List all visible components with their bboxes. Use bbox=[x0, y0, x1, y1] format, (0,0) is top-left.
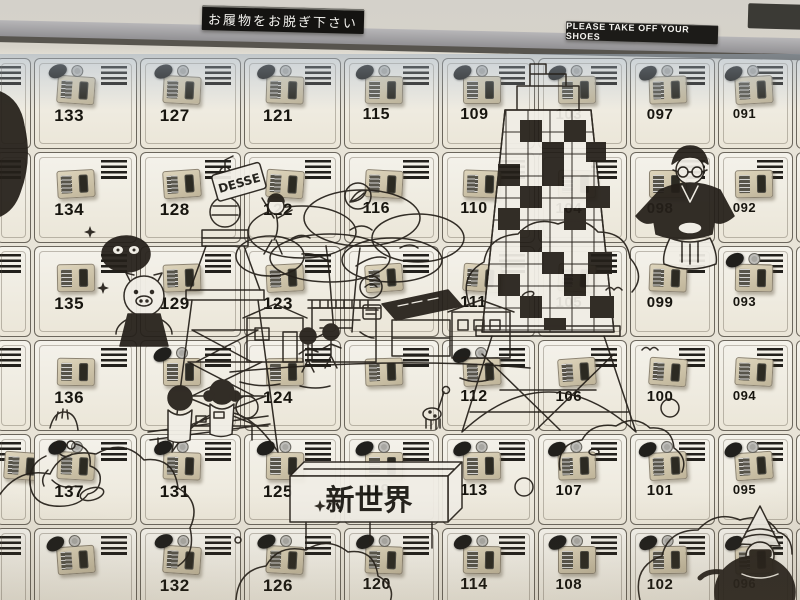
locker-door[interactable]: 136 bbox=[34, 340, 137, 431]
locker-door[interactable]: 103 bbox=[538, 58, 627, 149]
key-lock[interactable] bbox=[57, 169, 96, 199]
locker-number: 104 bbox=[556, 200, 583, 217]
key-fob-icon[interactable] bbox=[47, 61, 70, 81]
locker-door[interactable]: 109 bbox=[442, 58, 535, 149]
key-slot[interactable] bbox=[757, 269, 766, 287]
key-fob-icon[interactable] bbox=[546, 439, 569, 460]
key-lock[interactable] bbox=[649, 170, 687, 198]
locker-door[interactable]: 101 bbox=[630, 434, 715, 525]
key-slot[interactable] bbox=[287, 551, 297, 569]
key-lock[interactable] bbox=[649, 451, 688, 481]
key-slot[interactable] bbox=[580, 81, 589, 99]
key-lock[interactable] bbox=[558, 76, 596, 105]
locker-number: 094 bbox=[733, 388, 756, 403]
lock-label-chip bbox=[369, 174, 381, 193]
locker-door[interactable] bbox=[796, 152, 800, 243]
key-fob-icon[interactable] bbox=[451, 62, 474, 82]
key-lock[interactable] bbox=[557, 263, 596, 293]
locker-door[interactable]: 120 bbox=[344, 528, 439, 600]
key-lock[interactable] bbox=[365, 452, 403, 480]
lock-label-chip bbox=[61, 269, 72, 287]
key-slot[interactable] bbox=[288, 81, 298, 99]
locker-door[interactable]: 131 bbox=[140, 434, 241, 525]
locker-number: 111 bbox=[460, 294, 486, 312]
lock-label-chip bbox=[562, 268, 574, 287]
lock-label-chip bbox=[739, 362, 751, 381]
key-icon[interactable] bbox=[661, 65, 673, 77]
locker-door[interactable] bbox=[796, 340, 800, 431]
locker-door[interactable]: 113 bbox=[442, 434, 535, 525]
key-slot[interactable] bbox=[484, 269, 494, 288]
vent-grille-icon bbox=[499, 536, 525, 557]
locker-door[interactable]: 129 bbox=[140, 246, 241, 337]
key-slot[interactable] bbox=[580, 175, 589, 193]
key-lock[interactable] bbox=[162, 75, 201, 105]
key-icon[interactable] bbox=[746, 441, 759, 454]
key-slot[interactable] bbox=[671, 80, 681, 98]
key-lock[interactable] bbox=[463, 452, 501, 481]
locker-number: 091 bbox=[733, 106, 756, 121]
japanese-shoes-sign: お履物をお脱ぎ下さい bbox=[202, 5, 365, 34]
key-fob-icon[interactable] bbox=[46, 438, 69, 458]
key-slot[interactable] bbox=[671, 363, 681, 382]
key-slot[interactable] bbox=[580, 269, 590, 287]
lock-label-chip bbox=[166, 80, 178, 99]
key-slot[interactable] bbox=[580, 456, 590, 474]
locker-door[interactable] bbox=[140, 340, 241, 431]
key-slot[interactable] bbox=[288, 363, 297, 381]
lock-label-chip bbox=[738, 457, 750, 476]
key-lock[interactable] bbox=[56, 545, 96, 576]
lock-label-chip bbox=[269, 550, 281, 569]
locker-door[interactable]: 098 bbox=[630, 152, 715, 243]
key-icon[interactable] bbox=[71, 441, 84, 454]
key-fob-icon[interactable] bbox=[255, 532, 278, 552]
key-lock[interactable] bbox=[365, 545, 404, 574]
key-fob-icon[interactable] bbox=[151, 344, 174, 364]
key-fob-icon[interactable] bbox=[451, 438, 474, 459]
lock-label-chip bbox=[653, 362, 665, 381]
locker-number: 102 bbox=[647, 576, 674, 593]
key-icon[interactable] bbox=[280, 535, 293, 548]
key-lock[interactable] bbox=[735, 264, 773, 293]
key-lock[interactable] bbox=[265, 545, 304, 575]
lock-label-chip bbox=[466, 268, 478, 287]
key-slot[interactable] bbox=[485, 457, 494, 475]
locker-door[interactable]: 111 bbox=[442, 246, 535, 337]
key-slot[interactable] bbox=[757, 363, 767, 381]
locker-door[interactable]: 125 bbox=[244, 434, 341, 525]
vent-grille-icon bbox=[403, 66, 429, 87]
vent-grille-icon bbox=[101, 442, 127, 463]
key-slot[interactable] bbox=[757, 550, 767, 568]
lock-label-chip bbox=[739, 551, 751, 569]
key-lock[interactable] bbox=[735, 170, 773, 199]
locker-door[interactable]: 099 bbox=[630, 246, 715, 337]
key-lock[interactable] bbox=[649, 75, 688, 104]
lock-label-chip bbox=[369, 269, 381, 288]
locker-door[interactable]: 119 bbox=[344, 434, 439, 525]
key-slot[interactable] bbox=[184, 551, 194, 570]
key-fob-icon[interactable] bbox=[152, 438, 175, 458]
vent-grille-icon bbox=[205, 66, 231, 87]
key-lock[interactable] bbox=[462, 357, 501, 387]
key-icon[interactable] bbox=[68, 535, 81, 548]
key-lock[interactable] bbox=[557, 357, 597, 388]
locker-number: 114 bbox=[460, 576, 487, 594]
key-slot[interactable] bbox=[184, 81, 194, 99]
key-lock[interactable] bbox=[365, 76, 403, 105]
locker-number: 120 bbox=[363, 576, 391, 594]
locker-door[interactable]: 100 bbox=[630, 340, 715, 431]
vent-grille-icon bbox=[0, 536, 21, 557]
lock-label-chip bbox=[739, 175, 750, 193]
key-lock[interactable] bbox=[734, 75, 773, 105]
locker-number: 131 bbox=[160, 482, 190, 502]
lock-label-chip bbox=[167, 363, 178, 381]
key-fob-icon[interactable] bbox=[546, 62, 569, 83]
locker-number: 122 bbox=[263, 200, 293, 220]
key-lock[interactable] bbox=[56, 75, 96, 106]
key-lock[interactable] bbox=[649, 546, 687, 575]
key-lock[interactable] bbox=[558, 170, 596, 199]
locker-door[interactable]: 097 bbox=[630, 58, 715, 149]
key-slot[interactable] bbox=[387, 362, 397, 380]
key-slot[interactable] bbox=[79, 457, 89, 475]
key-slot[interactable] bbox=[387, 268, 397, 287]
key-fob-icon[interactable] bbox=[152, 531, 175, 551]
key-lock[interactable] bbox=[163, 358, 201, 386]
locker-door[interactable]: 102 bbox=[630, 528, 715, 600]
vent-grille-icon bbox=[305, 442, 331, 463]
locker-number: 116 bbox=[363, 200, 390, 218]
locker-door[interactable] bbox=[0, 152, 31, 243]
lock-label-chip bbox=[653, 457, 665, 476]
key-slot[interactable] bbox=[184, 457, 194, 475]
key-lock[interactable] bbox=[57, 451, 96, 481]
key-lock[interactable] bbox=[162, 545, 202, 576]
locker-door[interactable]: 095 bbox=[718, 434, 793, 525]
key-icon[interactable] bbox=[748, 253, 760, 265]
lock-label-chip bbox=[270, 80, 282, 98]
key-fob-icon[interactable] bbox=[255, 62, 278, 82]
locker-door[interactable] bbox=[0, 528, 31, 600]
locker-number: 132 bbox=[160, 576, 190, 596]
locker-door[interactable]: 116 bbox=[344, 152, 439, 243]
locker-number: 110 bbox=[460, 200, 487, 218]
key-icon[interactable] bbox=[662, 535, 674, 547]
key-fob-icon[interactable] bbox=[723, 250, 746, 270]
key-slot[interactable] bbox=[79, 363, 88, 381]
key-lock[interactable] bbox=[57, 264, 95, 293]
key-slot[interactable] bbox=[79, 81, 89, 100]
key-slot[interactable] bbox=[387, 551, 397, 569]
locker-door[interactable]: 134 bbox=[34, 152, 137, 243]
key-slot[interactable] bbox=[387, 175, 397, 193]
key-fob-icon[interactable] bbox=[354, 532, 377, 552]
key-slot[interactable] bbox=[184, 268, 194, 286]
key-icon[interactable] bbox=[571, 535, 583, 547]
vent-grille-icon bbox=[499, 66, 525, 87]
locker-number: 101 bbox=[647, 482, 674, 499]
key-slot[interactable] bbox=[485, 362, 495, 380]
lock-label-chip bbox=[653, 175, 664, 193]
locker-number: 126 bbox=[263, 576, 293, 596]
lock-label-chip bbox=[61, 456, 73, 475]
key-slot[interactable] bbox=[579, 362, 589, 381]
key-icon[interactable] bbox=[476, 535, 488, 547]
vent-grille-icon bbox=[205, 254, 231, 275]
lock-label-chip bbox=[653, 81, 665, 99]
locker-door[interactable] bbox=[0, 340, 31, 431]
locker-door[interactable]: 132 bbox=[140, 528, 241, 600]
locker-door[interactable] bbox=[796, 246, 800, 337]
key-slot[interactable] bbox=[387, 81, 396, 99]
key-lock[interactable] bbox=[463, 76, 501, 104]
key-slot[interactable] bbox=[671, 175, 680, 193]
key-slot[interactable] bbox=[671, 551, 680, 569]
key-fob-icon[interactable] bbox=[152, 62, 175, 82]
locker-door[interactable]: 104 bbox=[538, 152, 627, 243]
locker-door[interactable]: 124 bbox=[244, 340, 341, 431]
vent-grille-icon bbox=[305, 536, 331, 557]
vent-grille-icon bbox=[403, 348, 429, 369]
key-lock[interactable] bbox=[57, 358, 95, 387]
locker-door[interactable]: 123 bbox=[244, 246, 341, 337]
locker-number: 135 bbox=[54, 294, 84, 314]
locker-number: 092 bbox=[733, 200, 756, 215]
vent-grille-icon bbox=[403, 254, 429, 275]
key-icon[interactable] bbox=[279, 65, 291, 77]
key-icon[interactable] bbox=[476, 441, 488, 453]
key-slot[interactable] bbox=[580, 551, 589, 569]
locker-door[interactable]: 121 bbox=[244, 58, 341, 149]
key-lock[interactable] bbox=[266, 358, 304, 387]
key-lock[interactable] bbox=[463, 169, 502, 198]
locker-door[interactable] bbox=[344, 246, 439, 337]
locker-door[interactable]: 112 bbox=[442, 340, 535, 431]
key-fob-icon[interactable] bbox=[546, 532, 569, 552]
locker-door[interactable]: 105 bbox=[538, 246, 627, 337]
locker-door[interactable] bbox=[796, 434, 800, 525]
key-lock[interactable] bbox=[365, 263, 405, 294]
lock-label-chip bbox=[739, 81, 751, 100]
key-slot[interactable] bbox=[288, 457, 297, 475]
lock-label-chip bbox=[562, 363, 574, 382]
key-slot[interactable] bbox=[757, 80, 767, 98]
key-icon[interactable] bbox=[176, 65, 189, 78]
locker-number: 109 bbox=[460, 106, 488, 124]
locker-door[interactable]: 093 bbox=[718, 246, 793, 337]
key-icon[interactable] bbox=[378, 441, 390, 453]
key-slot[interactable] bbox=[485, 175, 495, 193]
key-lock[interactable] bbox=[265, 169, 305, 200]
key-icon[interactable] bbox=[71, 65, 84, 78]
locker-number: 100 bbox=[647, 388, 674, 405]
lock-label-chip bbox=[166, 550, 178, 569]
vent-grille-icon bbox=[205, 536, 231, 557]
vent-grille-icon bbox=[403, 442, 429, 463]
locker-number: 097 bbox=[647, 106, 674, 123]
locker-number: 124 bbox=[263, 388, 293, 408]
key-icon[interactable] bbox=[476, 65, 488, 77]
key-icon[interactable] bbox=[661, 441, 674, 454]
locker-door[interactable]: 106 bbox=[538, 340, 627, 431]
locker-number: 115 bbox=[363, 106, 390, 124]
key-lock[interactable] bbox=[463, 546, 501, 575]
locker-number: 106 bbox=[556, 388, 583, 405]
key-icon[interactable] bbox=[177, 535, 190, 548]
key-icon[interactable] bbox=[176, 441, 188, 453]
lock-label-chip bbox=[467, 81, 478, 99]
key-fob-icon[interactable] bbox=[254, 438, 277, 458]
locker-door[interactable]: 137 bbox=[34, 434, 137, 525]
lock-label-chip bbox=[562, 551, 573, 569]
key-lock[interactable] bbox=[649, 263, 688, 292]
key-slot[interactable] bbox=[79, 269, 88, 287]
locker-door[interactable]: 090 bbox=[796, 528, 800, 600]
key-lock[interactable] bbox=[734, 357, 773, 387]
key-fob-icon[interactable] bbox=[354, 438, 377, 458]
key-slot[interactable] bbox=[485, 81, 494, 99]
lock-label-chip bbox=[562, 175, 573, 193]
locker-number: 119 bbox=[363, 482, 390, 500]
key-lock[interactable] bbox=[648, 357, 688, 388]
locker-door[interactable]: 115 bbox=[344, 58, 439, 149]
key-slot[interactable] bbox=[671, 269, 681, 287]
key-lock[interactable] bbox=[558, 546, 596, 574]
key-lock[interactable] bbox=[462, 263, 502, 294]
locker-door[interactable] bbox=[344, 340, 439, 431]
vent-grille-icon bbox=[403, 536, 429, 557]
key-lock[interactable] bbox=[365, 357, 404, 386]
locker-door[interactable]: 108 bbox=[538, 528, 627, 600]
dark-box bbox=[748, 3, 800, 30]
locker-door[interactable] bbox=[796, 58, 800, 149]
locker-door[interactable] bbox=[34, 528, 137, 600]
key-slot[interactable] bbox=[185, 363, 194, 381]
locker-door[interactable]: 114 bbox=[442, 528, 535, 600]
locker-number: 134 bbox=[54, 200, 84, 220]
key-lock[interactable] bbox=[162, 451, 201, 480]
key-icon[interactable] bbox=[475, 347, 488, 360]
key-slot[interactable] bbox=[287, 268, 297, 286]
locker-door[interactable]: 126 bbox=[244, 528, 341, 600]
key-lock[interactable] bbox=[365, 169, 404, 199]
locker-door[interactable]: 127 bbox=[140, 58, 241, 149]
vent-grille-icon bbox=[499, 160, 525, 181]
key-slot[interactable] bbox=[79, 174, 89, 192]
locker-number: 107 bbox=[556, 482, 583, 499]
key-icon[interactable] bbox=[747, 65, 760, 78]
locker-door[interactable]: 135 bbox=[34, 246, 137, 337]
key-lock[interactable] bbox=[558, 451, 597, 480]
key-icon[interactable] bbox=[279, 441, 291, 453]
key-fob-icon[interactable] bbox=[451, 532, 474, 552]
key-icon[interactable] bbox=[571, 65, 583, 77]
key-slot[interactable] bbox=[387, 457, 396, 475]
key-icon[interactable] bbox=[379, 535, 391, 547]
locker-door[interactable] bbox=[0, 434, 31, 525]
lock-label-chip bbox=[270, 457, 281, 475]
key-slot[interactable] bbox=[184, 174, 194, 193]
vent-grille-icon bbox=[499, 442, 525, 463]
key-lock[interactable] bbox=[265, 263, 304, 293]
key-slot[interactable] bbox=[671, 456, 681, 474]
locker-door[interactable]: 133 bbox=[34, 58, 137, 149]
lock-label-chip bbox=[467, 174, 479, 192]
key-lock[interactable] bbox=[162, 263, 201, 292]
locker-number: 105 bbox=[556, 294, 583, 311]
lock-label-chip bbox=[166, 456, 178, 474]
lock-label-chip bbox=[467, 457, 478, 475]
locker-door[interactable]: 092 bbox=[718, 152, 793, 243]
lock-label-chip bbox=[369, 81, 380, 99]
locker-door[interactable]: 094 bbox=[718, 340, 793, 431]
locker-number: 137 bbox=[54, 482, 84, 502]
key-lock[interactable] bbox=[162, 169, 202, 200]
key-slot[interactable] bbox=[756, 456, 766, 475]
key-slot[interactable] bbox=[287, 175, 297, 194]
lock-label-chip bbox=[467, 551, 478, 569]
locker-door[interactable]: 107 bbox=[538, 434, 627, 525]
locker-number: 103 bbox=[556, 106, 583, 123]
locker-door[interactable] bbox=[0, 246, 31, 337]
locker-door[interactable]: 091 bbox=[718, 58, 793, 149]
key-icon[interactable] bbox=[747, 535, 759, 547]
locker-door[interactable]: 110 bbox=[442, 152, 535, 243]
vent-grille-icon bbox=[305, 348, 331, 369]
vent-grille-icon bbox=[101, 160, 127, 181]
locker-door[interactable]: 122 bbox=[244, 152, 341, 243]
lock-label-chip bbox=[369, 363, 381, 381]
lock-label-chip bbox=[269, 174, 281, 193]
locker-number: 127 bbox=[160, 106, 190, 126]
key-slot[interactable] bbox=[79, 550, 89, 569]
key-icon[interactable] bbox=[379, 65, 391, 77]
english-shoes-sign: PLEASE TAKE OFF YOUR SHOES bbox=[566, 21, 718, 45]
key-icon[interactable] bbox=[176, 347, 188, 359]
key-lock[interactable] bbox=[265, 75, 304, 104]
locker-number: 113 bbox=[460, 482, 487, 500]
lock-label-chip bbox=[61, 80, 73, 99]
key-fob-icon[interactable] bbox=[722, 533, 745, 554]
key-slot[interactable] bbox=[485, 551, 494, 569]
vent-grille-icon bbox=[305, 160, 331, 181]
key-lock[interactable] bbox=[266, 452, 304, 481]
key-fob-icon[interactable] bbox=[354, 62, 377, 82]
locker-door[interactable]: 096 bbox=[718, 528, 793, 600]
locker-door[interactable] bbox=[0, 58, 31, 149]
lock-label-chip bbox=[8, 456, 20, 475]
lock-label-chip bbox=[61, 175, 73, 194]
locker-door[interactable]: 128 bbox=[140, 152, 241, 243]
key-lock[interactable] bbox=[734, 451, 774, 482]
locker-wall-photo: 1331341351361371271281291311321211221231… bbox=[0, 0, 800, 600]
vent-grille-icon bbox=[205, 348, 231, 369]
vent-grille-icon bbox=[101, 66, 127, 87]
lock-label-chip bbox=[369, 457, 380, 475]
vent-grille-icon bbox=[205, 442, 231, 463]
key-icon[interactable] bbox=[570, 441, 582, 453]
vent-grille-icon bbox=[499, 254, 525, 275]
vent-grille-icon bbox=[0, 254, 21, 275]
key-lock[interactable] bbox=[735, 545, 774, 574]
key-slot[interactable] bbox=[757, 175, 766, 193]
key-fob-icon[interactable] bbox=[637, 532, 660, 553]
locker-number: 108 bbox=[556, 576, 583, 593]
key-fob-icon[interactable] bbox=[637, 63, 660, 84]
